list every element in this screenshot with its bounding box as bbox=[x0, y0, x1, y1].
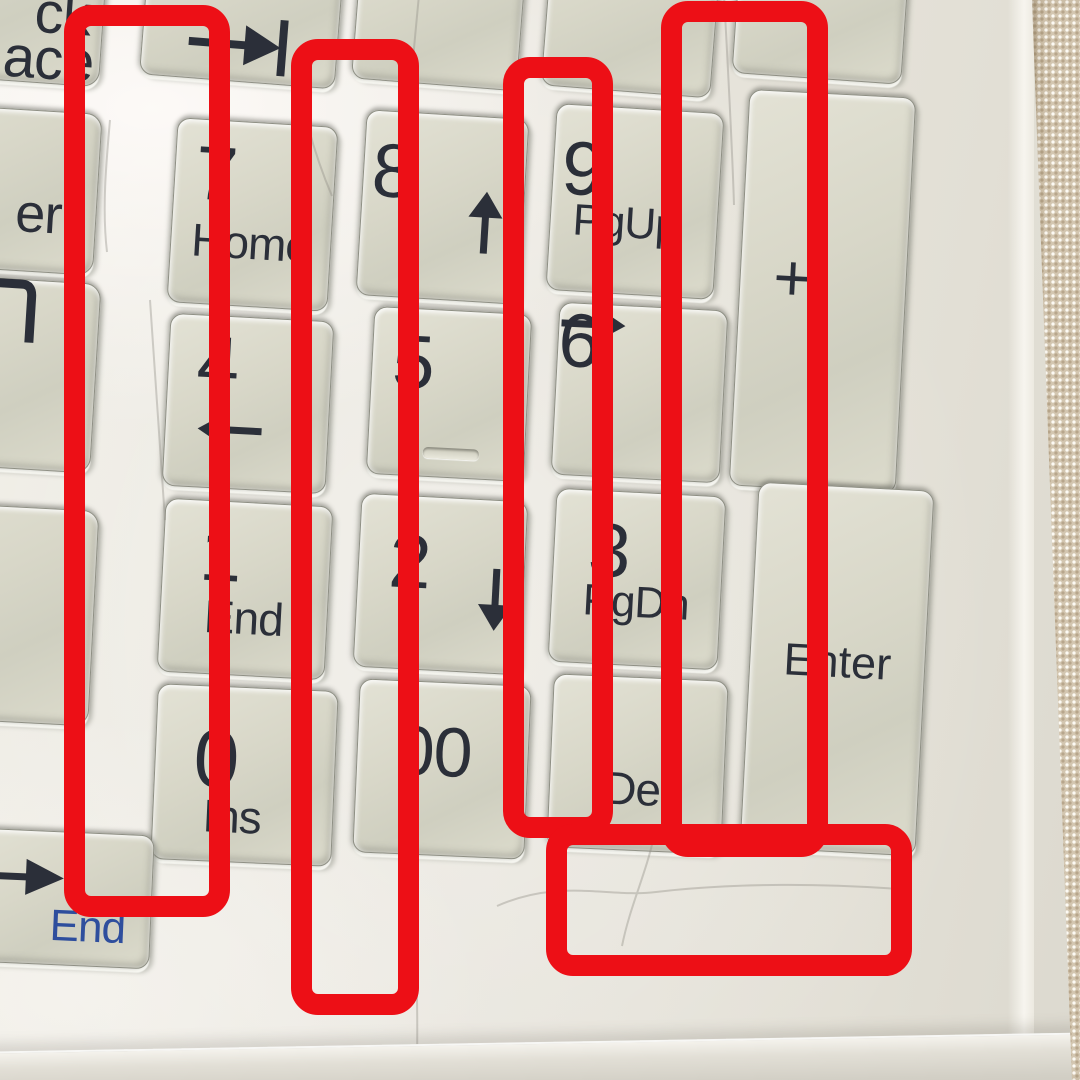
background-fabric bbox=[1030, 0, 1080, 1080]
laptop-front-edge bbox=[0, 1032, 1080, 1080]
annotation-box-4 bbox=[661, 1, 828, 857]
deck-right-rim bbox=[1008, 0, 1034, 1080]
key-label-main: er bbox=[14, 186, 63, 243]
annotation-box-1 bbox=[64, 5, 230, 917]
up-arrow-icon bbox=[463, 188, 507, 256]
annotation-box-5 bbox=[546, 824, 912, 976]
corner-bracket-glyph bbox=[0, 273, 42, 348]
photo-canvas: ckaceer7Home89PgUp+4561End23PgDnEnter0In… bbox=[0, 0, 1080, 1080]
annotation-box-2 bbox=[291, 39, 419, 1015]
annotation-box-3 bbox=[503, 57, 613, 838]
right-arrow-icon bbox=[0, 852, 67, 899]
